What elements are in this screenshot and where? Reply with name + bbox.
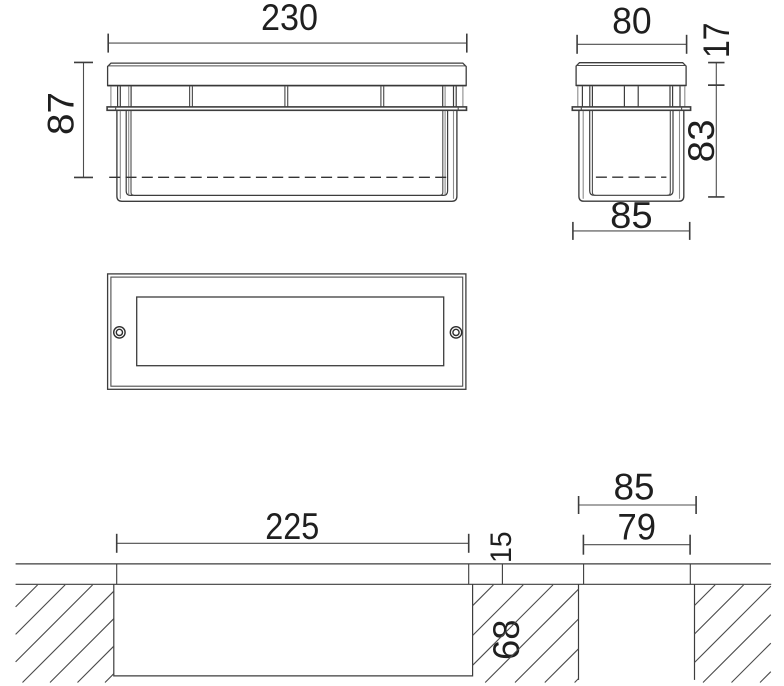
svg-text:85: 85 <box>610 195 653 236</box>
svg-text:225: 225 <box>265 506 319 547</box>
svg-text:230: 230 <box>261 0 318 38</box>
svg-text:17: 17 <box>696 22 737 58</box>
svg-text:80: 80 <box>612 1 652 42</box>
svg-text:79: 79 <box>617 506 656 547</box>
svg-text:68: 68 <box>486 620 527 661</box>
svg-text:85: 85 <box>614 467 655 508</box>
svg-text:87: 87 <box>40 92 81 135</box>
svg-text:15: 15 <box>485 531 518 563</box>
